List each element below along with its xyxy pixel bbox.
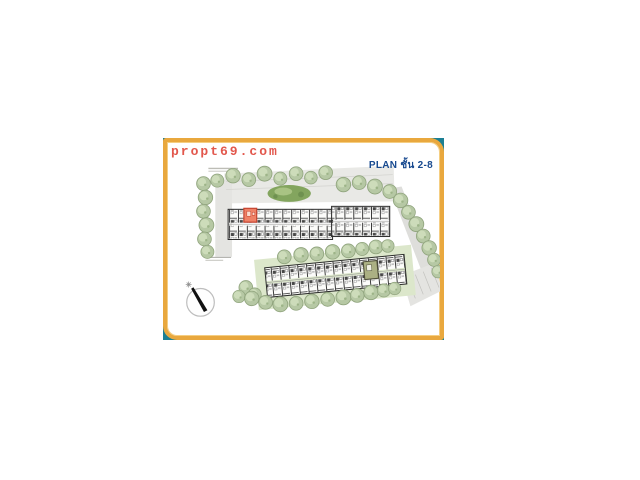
building-top <box>228 206 390 239</box>
screenshot-stage: propt69.com PLAN ชั้น 2-8 <box>0 0 640 480</box>
watermark-text: propt69.com <box>171 144 279 159</box>
compass-star-icon <box>186 282 192 288</box>
floor-plan-card: propt69.com PLAN ชั้น 2-8 <box>163 138 444 340</box>
garden <box>268 185 311 202</box>
compass <box>186 282 215 317</box>
tree-group-left <box>197 177 214 259</box>
plan-title: PLAN ชั้น 2-8 <box>369 158 433 173</box>
